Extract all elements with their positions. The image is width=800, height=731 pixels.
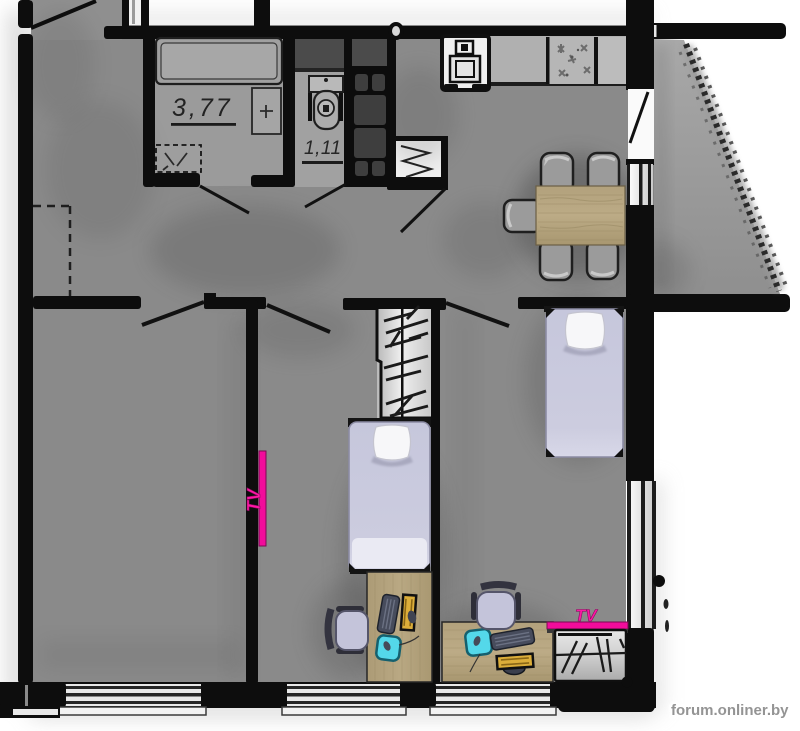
svg-text:1,11: 1,11 — [304, 138, 342, 159]
svg-text:forum.onliner.by: forum.onliner.by — [671, 702, 789, 719]
svg-text:TV: TV — [244, 487, 264, 512]
svg-text:3,77: 3,77 — [172, 94, 233, 122]
